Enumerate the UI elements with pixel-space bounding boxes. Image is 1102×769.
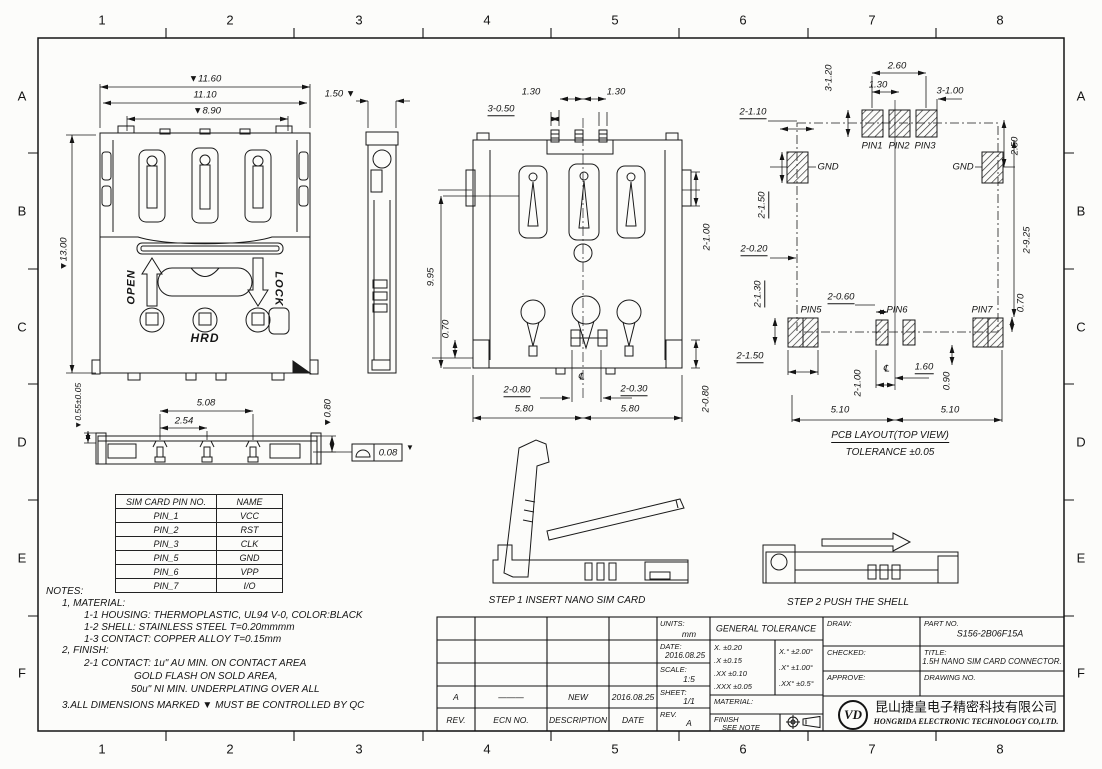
grid-row-label: A [18, 89, 27, 104]
dim-0-55: ▼0.55±0.05 [74, 383, 83, 429]
note-line: 1-3 CONTACT: COPPER ALLOY T=0.15mm [84, 634, 281, 645]
grid-col-label: 2 [226, 742, 233, 757]
logo-text: VD [844, 707, 862, 723]
dim-width-8-90: ▼8.90 [193, 106, 221, 116]
pin-no: PIN_3 [116, 537, 217, 551]
general-tolerance-header: GENERAL TOLERANCE [716, 625, 816, 634]
tolerance-line: .XXX ±0.05 [714, 683, 752, 691]
grid-col-label: 6 [739, 742, 746, 757]
note-line: GOLD FLASH ON SOLD AREA, [134, 671, 278, 682]
pad-label-pin5: PIN5 [800, 305, 821, 315]
dim-2-0-30: 2-0.30 [621, 384, 648, 396]
grid-row-label: F [18, 666, 26, 681]
tolerance-line: .XX ±0.10 [714, 670, 747, 678]
scale-label: SCALE: [660, 666, 687, 674]
pcb-tolerance-caption: TOLERANCE ±0.05 [846, 448, 935, 458]
pcb-caption: PCB LAYOUT(TOP VIEW) [831, 431, 949, 443]
profile-view [84, 411, 402, 464]
engineering-drawing-sheet: { "grid": { "cols": ["1","2","3","4","5"… [0, 0, 1102, 769]
dim-2-0-20: 2-0.20 [741, 244, 768, 256]
flatness-icon [356, 450, 370, 457]
grid-col-label: 4 [483, 13, 490, 28]
dim-2-1-50: 2-1.50 [757, 192, 769, 219]
pin-table-header: NAME [217, 495, 283, 509]
dim-2-0-60: 2-0.60 [828, 292, 855, 304]
dim-3-1-20: 3-1.20 [824, 65, 834, 92]
company-name-en: HONGRIDA ELECTRONIC TECHNOLOGY CO,LTD. [874, 718, 1059, 726]
dim-2-9-25: 2-9.25 [1022, 227, 1032, 254]
pin-table-row: PIN_1VCC [116, 509, 283, 523]
pin-table-row: PIN_2RST [116, 523, 283, 537]
hrd-brand-label: HRD [191, 332, 220, 344]
pcb-layout-view [768, 73, 1015, 422]
checked-label: CHECKED: [827, 649, 866, 657]
note-line: 50u" NI MIN. UNDERPLATING OVER ALL [131, 684, 320, 695]
flatness-value: 0.08 [379, 448, 398, 458]
push-arrow-icon [822, 533, 910, 551]
grid-col-label: 4 [483, 742, 490, 757]
grid-col-label: 6 [739, 13, 746, 28]
title-label: TITLE: [924, 649, 947, 657]
pad-label-pin7: PIN7 [971, 305, 992, 315]
notes-title: NOTES: [46, 586, 83, 597]
dim-1-30: 1.30 [869, 80, 888, 90]
grid-row-label: D [17, 435, 26, 450]
dim-2-60: 2.60 [888, 61, 907, 71]
dim-2-1-00: 2-1.00 [853, 370, 863, 397]
dim-width-11-60: ▼11.60 [189, 74, 221, 84]
pin-table-row: PIN_7I/O [116, 579, 283, 593]
pin-table-header-row: SIM CARD PIN NO. NAME [116, 495, 283, 509]
pin-table-row: PIN_3CLK [116, 537, 283, 551]
pin-name: CLK [217, 537, 283, 551]
pin-name: RST [217, 523, 283, 537]
dim-1-30: 1.30 [522, 87, 541, 97]
centerline-symbol: ℄ [883, 364, 889, 374]
title-value: 1.5H NANO SIM CARD CONNECTOR. [922, 658, 1061, 666]
grid-col-label: 1 [98, 13, 105, 28]
grid-col-label: 8 [996, 13, 1003, 28]
grid-col-label: 5 [611, 13, 618, 28]
pin-no: PIN_1 [116, 509, 217, 523]
note-line: 2-1 CONTACT: 1u" AU MIN. ON CONTACT AREA [84, 658, 306, 669]
note-line: 1, MATERIAL: [62, 598, 125, 609]
pad-label-gnd-right: GND [952, 162, 973, 172]
dim-0-70: 0.70 [1016, 294, 1026, 313]
qc-marker: ▼ [406, 444, 414, 452]
dim-2-0-80: 2-0.80 [504, 385, 531, 397]
tolerance-line: .X ±0.15 [714, 657, 742, 665]
pin-name: I/O [217, 579, 283, 593]
pin-table-row: PIN_5GND [116, 551, 283, 565]
dim-1-30: 1.30 [607, 87, 626, 97]
date-value: 2016.08.25 [612, 693, 655, 702]
side-view [356, 101, 410, 373]
grid-row-label: A [1077, 89, 1086, 104]
dim-5-08: 5.08 [197, 398, 216, 408]
dim-2-1-50: 2-1.50 [737, 351, 764, 363]
tolerance-line: .XX° ±0.5° [779, 680, 814, 688]
grid-col-label: 7 [868, 742, 875, 757]
dim-width-11-10: 11.10 [193, 90, 216, 100]
dim-2-0-80: 2-0.80 [701, 386, 711, 413]
grid-col-label: 3 [355, 742, 362, 757]
step1-caption: STEP 1 INSERT NANO SIM CARD [489, 596, 646, 606]
date-label: DATE: [660, 643, 682, 651]
description-value: NEW [568, 693, 588, 702]
dim-2-50: 2.50 [1010, 137, 1020, 156]
sheet-value: 1/1 [683, 697, 695, 706]
grid-col-label: 8 [996, 742, 1003, 757]
drawing-no-label: DRAWING NO. [924, 674, 976, 682]
dim-2-1-10: 2-1.10 [740, 107, 767, 119]
step1-graphic [493, 440, 688, 583]
pin-name: GND [217, 551, 283, 565]
ecn-value: ——— [498, 693, 524, 702]
dim-2-54: 2.54 [175, 416, 194, 426]
note-line: 1-1 HOUSING: THERMOPLASTIC, UL94 V-0, CO… [84, 610, 363, 621]
part-no-label: PART NO. [924, 620, 959, 628]
approve-label: APPROVE: [827, 674, 865, 682]
description-col-header: DESCRIPTION [549, 716, 607, 725]
ecn-col-header: ECN NO. [493, 716, 528, 725]
grid-row-label: C [1076, 320, 1085, 335]
grid-row-label: B [18, 204, 27, 219]
grid-row-label: F [1077, 666, 1085, 681]
grid-col-label: 2 [226, 13, 233, 28]
dim-5-10: 5.10 [831, 405, 850, 415]
pad-label-pin1: PIN1 [861, 141, 882, 151]
draw-label: DRAW: [827, 620, 852, 628]
material-label: MATERIAL: [714, 698, 753, 706]
pad-label-pin3: PIN3 [914, 141, 935, 151]
note-line: 3.ALL DIMENSIONS MARKED ▼ MUST BE CONTRO… [62, 700, 364, 711]
finish-value: SEE NOTE [722, 724, 760, 732]
rev-label: REV. [660, 711, 677, 719]
scale-value: 1:5 [683, 675, 695, 684]
step2-graphic [763, 533, 958, 583]
dim-0-80: ▼0.80 [323, 399, 333, 427]
grid-row-label: E [1077, 551, 1086, 566]
dim-3-0-50: 3-0.50 [488, 104, 515, 116]
pin-table: SIM CARD PIN NO. NAME PIN_1VCC PIN_2RST … [115, 494, 283, 593]
units-label: UNITS: [660, 620, 685, 628]
grid-row-label: C [17, 320, 26, 335]
dim-thickness-1-50: 1.50 ▼ [325, 89, 356, 99]
pin-no: PIN_7 [116, 579, 217, 593]
dim-0-90: 0.90 [942, 372, 952, 391]
units-value: mm [682, 630, 696, 639]
dim-5-80: 5.80 [515, 404, 534, 414]
rev-value: A [686, 719, 692, 728]
tolerance-line: X. ±0.20 [714, 644, 742, 652]
date-value: 2016.08.25 [665, 652, 705, 660]
grid-row-label: D [1076, 435, 1085, 450]
grid-row-label: B [1077, 204, 1086, 219]
dim-1-60: 1.60 [915, 362, 934, 374]
pad-label-pin2: PIN2 [888, 141, 909, 151]
lock-label: LOCK [273, 271, 284, 306]
dim-0-70: 0.70 [441, 320, 451, 339]
dim-height-13-00: ▼13.00 [59, 237, 69, 270]
grid-row-label: E [18, 551, 27, 566]
date-col-header: DATE [622, 716, 644, 725]
projection-icon [786, 715, 820, 729]
rev-col-header: REV. [446, 716, 465, 725]
pin-no: PIN_2 [116, 523, 217, 537]
dim-5-10: 5.10 [941, 405, 960, 415]
open-label: OPEN [127, 269, 138, 304]
rev-value: A [453, 693, 459, 702]
grid-col-label: 3 [355, 13, 362, 28]
pin-no: PIN_5 [116, 551, 217, 565]
grid-col-label: 1 [98, 742, 105, 757]
dim-9-95: 9.95 [426, 268, 436, 287]
pin-table-header: SIM CARD PIN NO. [116, 495, 217, 509]
company-name-cn: 昆山捷皇电子精密科技有限公司 [875, 701, 1057, 714]
pin-name: VPP [217, 565, 283, 579]
step2-caption: STEP 2 PUSH THE SHELL [787, 598, 909, 608]
grid-col-label: 5 [611, 742, 618, 757]
note-line: 2, FINISH: [62, 645, 109, 656]
tolerance-line: .X° ±1.00° [779, 664, 813, 672]
pin-no: PIN_6 [116, 565, 217, 579]
pin-name: VCC [217, 509, 283, 523]
dim-5-80: 5.80 [621, 404, 640, 414]
centerline-symbol: ℄ [578, 372, 584, 382]
dim-3-1-00: 3-1.00 [937, 86, 964, 96]
pad-label-gnd-left: GND [817, 162, 838, 172]
grid-col-label: 7 [868, 13, 875, 28]
bottom-view [432, 99, 700, 422]
dim-2-1-00: 2-1.00 [702, 224, 712, 251]
dim-2-1-30: 2-1.30 [753, 281, 765, 308]
company-logo: VD [838, 700, 868, 730]
tolerance-line: X.° ±2.00° [779, 648, 813, 656]
pad-label-pin6: PIN6 [886, 305, 907, 315]
part-no-value: S156-2B06F15A [957, 630, 1024, 639]
note-line: 1-2 SHELL: STAINLESS STEEL T=0.20mmmm [84, 622, 295, 633]
pin-table-row: PIN_6VPP [116, 565, 283, 579]
